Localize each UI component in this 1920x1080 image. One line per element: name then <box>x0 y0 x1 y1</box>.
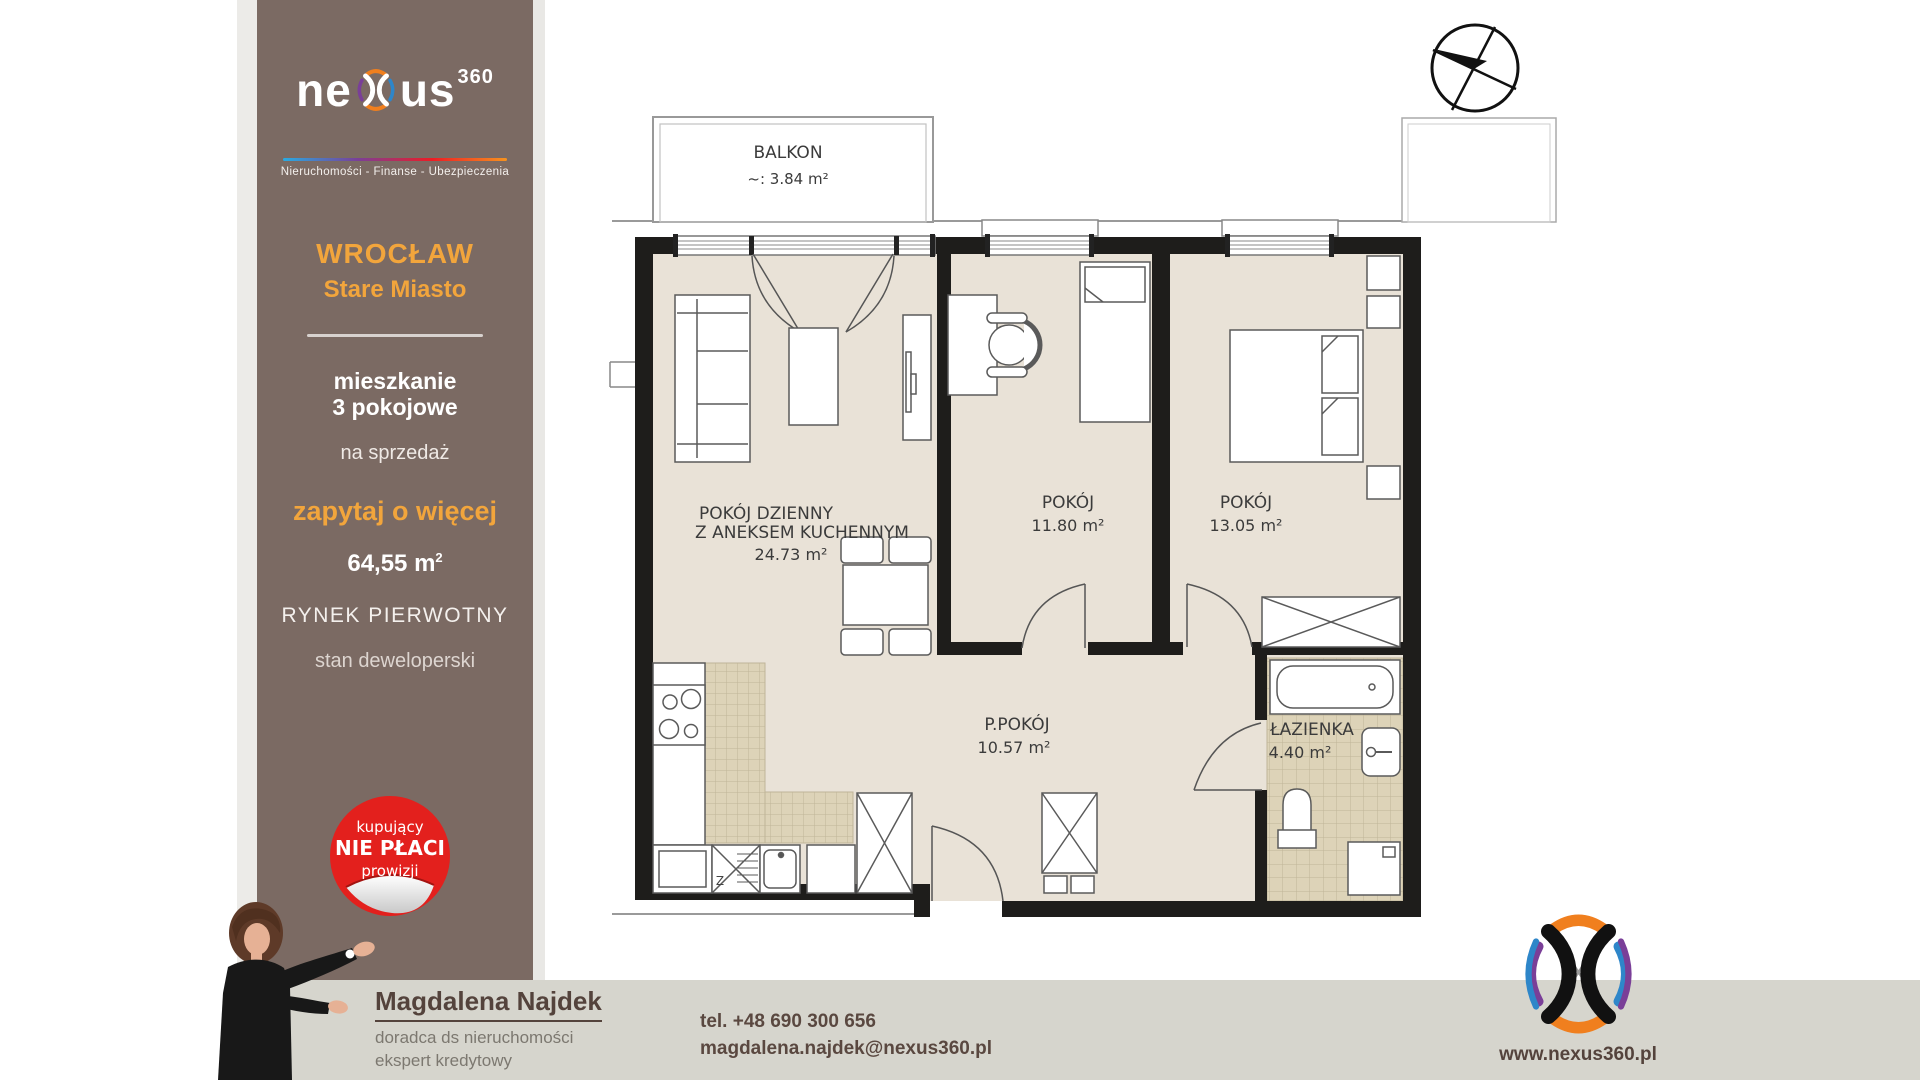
listing-area-value: 64,55 m <box>347 550 435 577</box>
kitchen-sink-mark: Z <box>716 874 724 888</box>
room3-area: 13.05 m² <box>1210 516 1283 535</box>
living-room-label-1: POKÓJ DZIENNY <box>699 502 834 524</box>
agent-role-1: doradca ds nieruchomości <box>375 1026 573 1049</box>
bathtub <box>1270 660 1400 714</box>
pillow <box>1322 398 1358 455</box>
compass-icon <box>1432 25 1518 111</box>
coffee-table <box>789 328 838 425</box>
sidebar-shadow-right <box>533 0 545 980</box>
agent-roles: doradca ds nieruchomości ekspert kredyto… <box>375 1026 573 1072</box>
shoe-cabinet <box>1044 876 1067 893</box>
brand-logo: ne us 360 <box>257 64 533 116</box>
website-url: www.nexus360.pl <box>1470 1044 1686 1066</box>
contact-block: tel. +48 690 300 656 magdalena.najdek@ne… <box>700 1008 992 1062</box>
location-city: WROCŁAW <box>257 238 533 270</box>
living-room-label-2: Z ANEKSEM KUCHENNYM <box>695 523 909 543</box>
bathroom-area: 4.40 m² <box>1269 743 1332 762</box>
listing-area: 64,55 m2 <box>257 550 533 578</box>
room3-label: POKÓJ <box>1220 491 1272 513</box>
bathroom-label: ŁAZIENKA <box>1269 720 1354 740</box>
agent-role-2: ekspert kredytowy <box>375 1049 573 1072</box>
brand-superscript: 360 <box>458 66 494 89</box>
nightstand <box>1367 256 1400 290</box>
chair <box>841 629 883 655</box>
hall-label: P.POKÓJ <box>984 713 1049 735</box>
sofa <box>675 295 750 462</box>
nightstand <box>1367 466 1400 499</box>
chair <box>889 629 931 655</box>
exterior-wall-stubs <box>610 362 635 387</box>
shoe-cabinet <box>1071 876 1094 893</box>
windows <box>673 234 1334 257</box>
window-sills <box>982 220 1338 236</box>
kitchen-counter <box>807 845 855 893</box>
nexus-x-icon <box>354 64 398 116</box>
badge-line2: NIE PŁACI <box>335 836 445 860</box>
listing-market: RYNEK PIERWOTNY <box>257 604 533 628</box>
kitchen-cabinet <box>653 845 712 893</box>
listing-condition: stan deweloperski <box>257 650 533 673</box>
agent-name: Magdalena Najdek <box>375 986 602 1022</box>
sidebar-shadow-left <box>237 0 257 980</box>
hall-area: 10.57 m² <box>978 738 1051 757</box>
real-estate-flyer: BALKON ~: 3.84 m² POKÓJ DZIENNY Z ANEKSE… <box>0 0 1920 1080</box>
listing-area-sup: 2 <box>435 550 442 565</box>
brand-gradient-line <box>283 158 507 161</box>
listing-cta: zapytaj o więcej <box>257 496 533 527</box>
badge-line3: prowizji <box>361 862 418 880</box>
room2-label: POKÓJ <box>1042 491 1094 513</box>
listing-type-line2: 3 pokojowe <box>257 394 533 421</box>
nightstand <box>1367 296 1400 328</box>
contact-phone: tel. +48 690 300 656 <box>700 1008 992 1035</box>
divider <box>307 334 483 337</box>
balcony-label: BALKON <box>753 143 822 163</box>
badge-line1: kupujący <box>356 818 423 836</box>
nexus-x-logo <box>1516 910 1641 1038</box>
balcony-area: ~: 3.84 m² <box>747 170 828 188</box>
dining-table <box>843 565 928 625</box>
pillow <box>1085 267 1145 302</box>
stove <box>653 685 705 745</box>
washing-machine <box>1348 842 1400 895</box>
pillow <box>1322 336 1358 393</box>
brand-name-pre: ne <box>296 64 352 116</box>
location-district: Stare Miasto <box>257 276 533 304</box>
neighbour-balcony-outline <box>1402 118 1556 222</box>
toilet <box>1283 789 1311 832</box>
listing-offer: na sprzedaż <box>257 442 533 465</box>
contact-email: magdalena.najdek@nexus360.pl <box>700 1035 992 1062</box>
office-chair <box>989 325 1029 365</box>
living-room-area: 24.73 m² <box>755 545 828 564</box>
room2-area: 11.80 m² <box>1032 516 1105 535</box>
listing-type-line1: mieszkanie <box>257 368 533 395</box>
brand-name-post: us <box>400 64 456 116</box>
brand-tagline: Nieruchomości - Finanse - Ubezpieczenia <box>257 166 533 178</box>
